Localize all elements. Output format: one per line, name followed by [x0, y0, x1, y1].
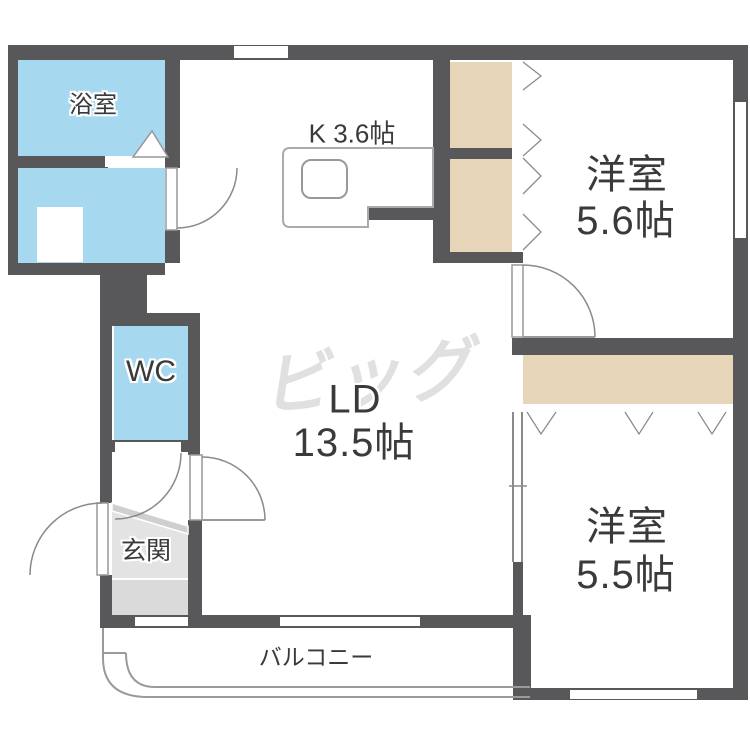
- bathroom-label: 浴室: [69, 85, 117, 120]
- kitchen-counter: [283, 148, 433, 227]
- bathroom-door-icon: [133, 131, 168, 157]
- balcony-label: バルコニー: [259, 638, 374, 672]
- closet-room2-chevrons: [527, 412, 726, 434]
- wc-label: WC: [126, 355, 176, 389]
- entrance-door: [30, 503, 108, 575]
- ld-size: 13.5帖: [293, 410, 416, 468]
- room2-size: 5.5帖: [576, 542, 676, 600]
- floor-plan: ビッグ: [0, 0, 750, 750]
- genkan-label: 玄関: [121, 531, 171, 567]
- closet-room1-chevrons: [523, 62, 541, 250]
- kitchen-label: K 3.6帖: [309, 114, 396, 151]
- room1-door: [512, 265, 595, 337]
- washroom-door: [166, 168, 237, 230]
- kitchen-sink: [302, 160, 347, 198]
- hall-ld-door: [190, 455, 265, 520]
- room1-size: 5.6帖: [576, 188, 676, 246]
